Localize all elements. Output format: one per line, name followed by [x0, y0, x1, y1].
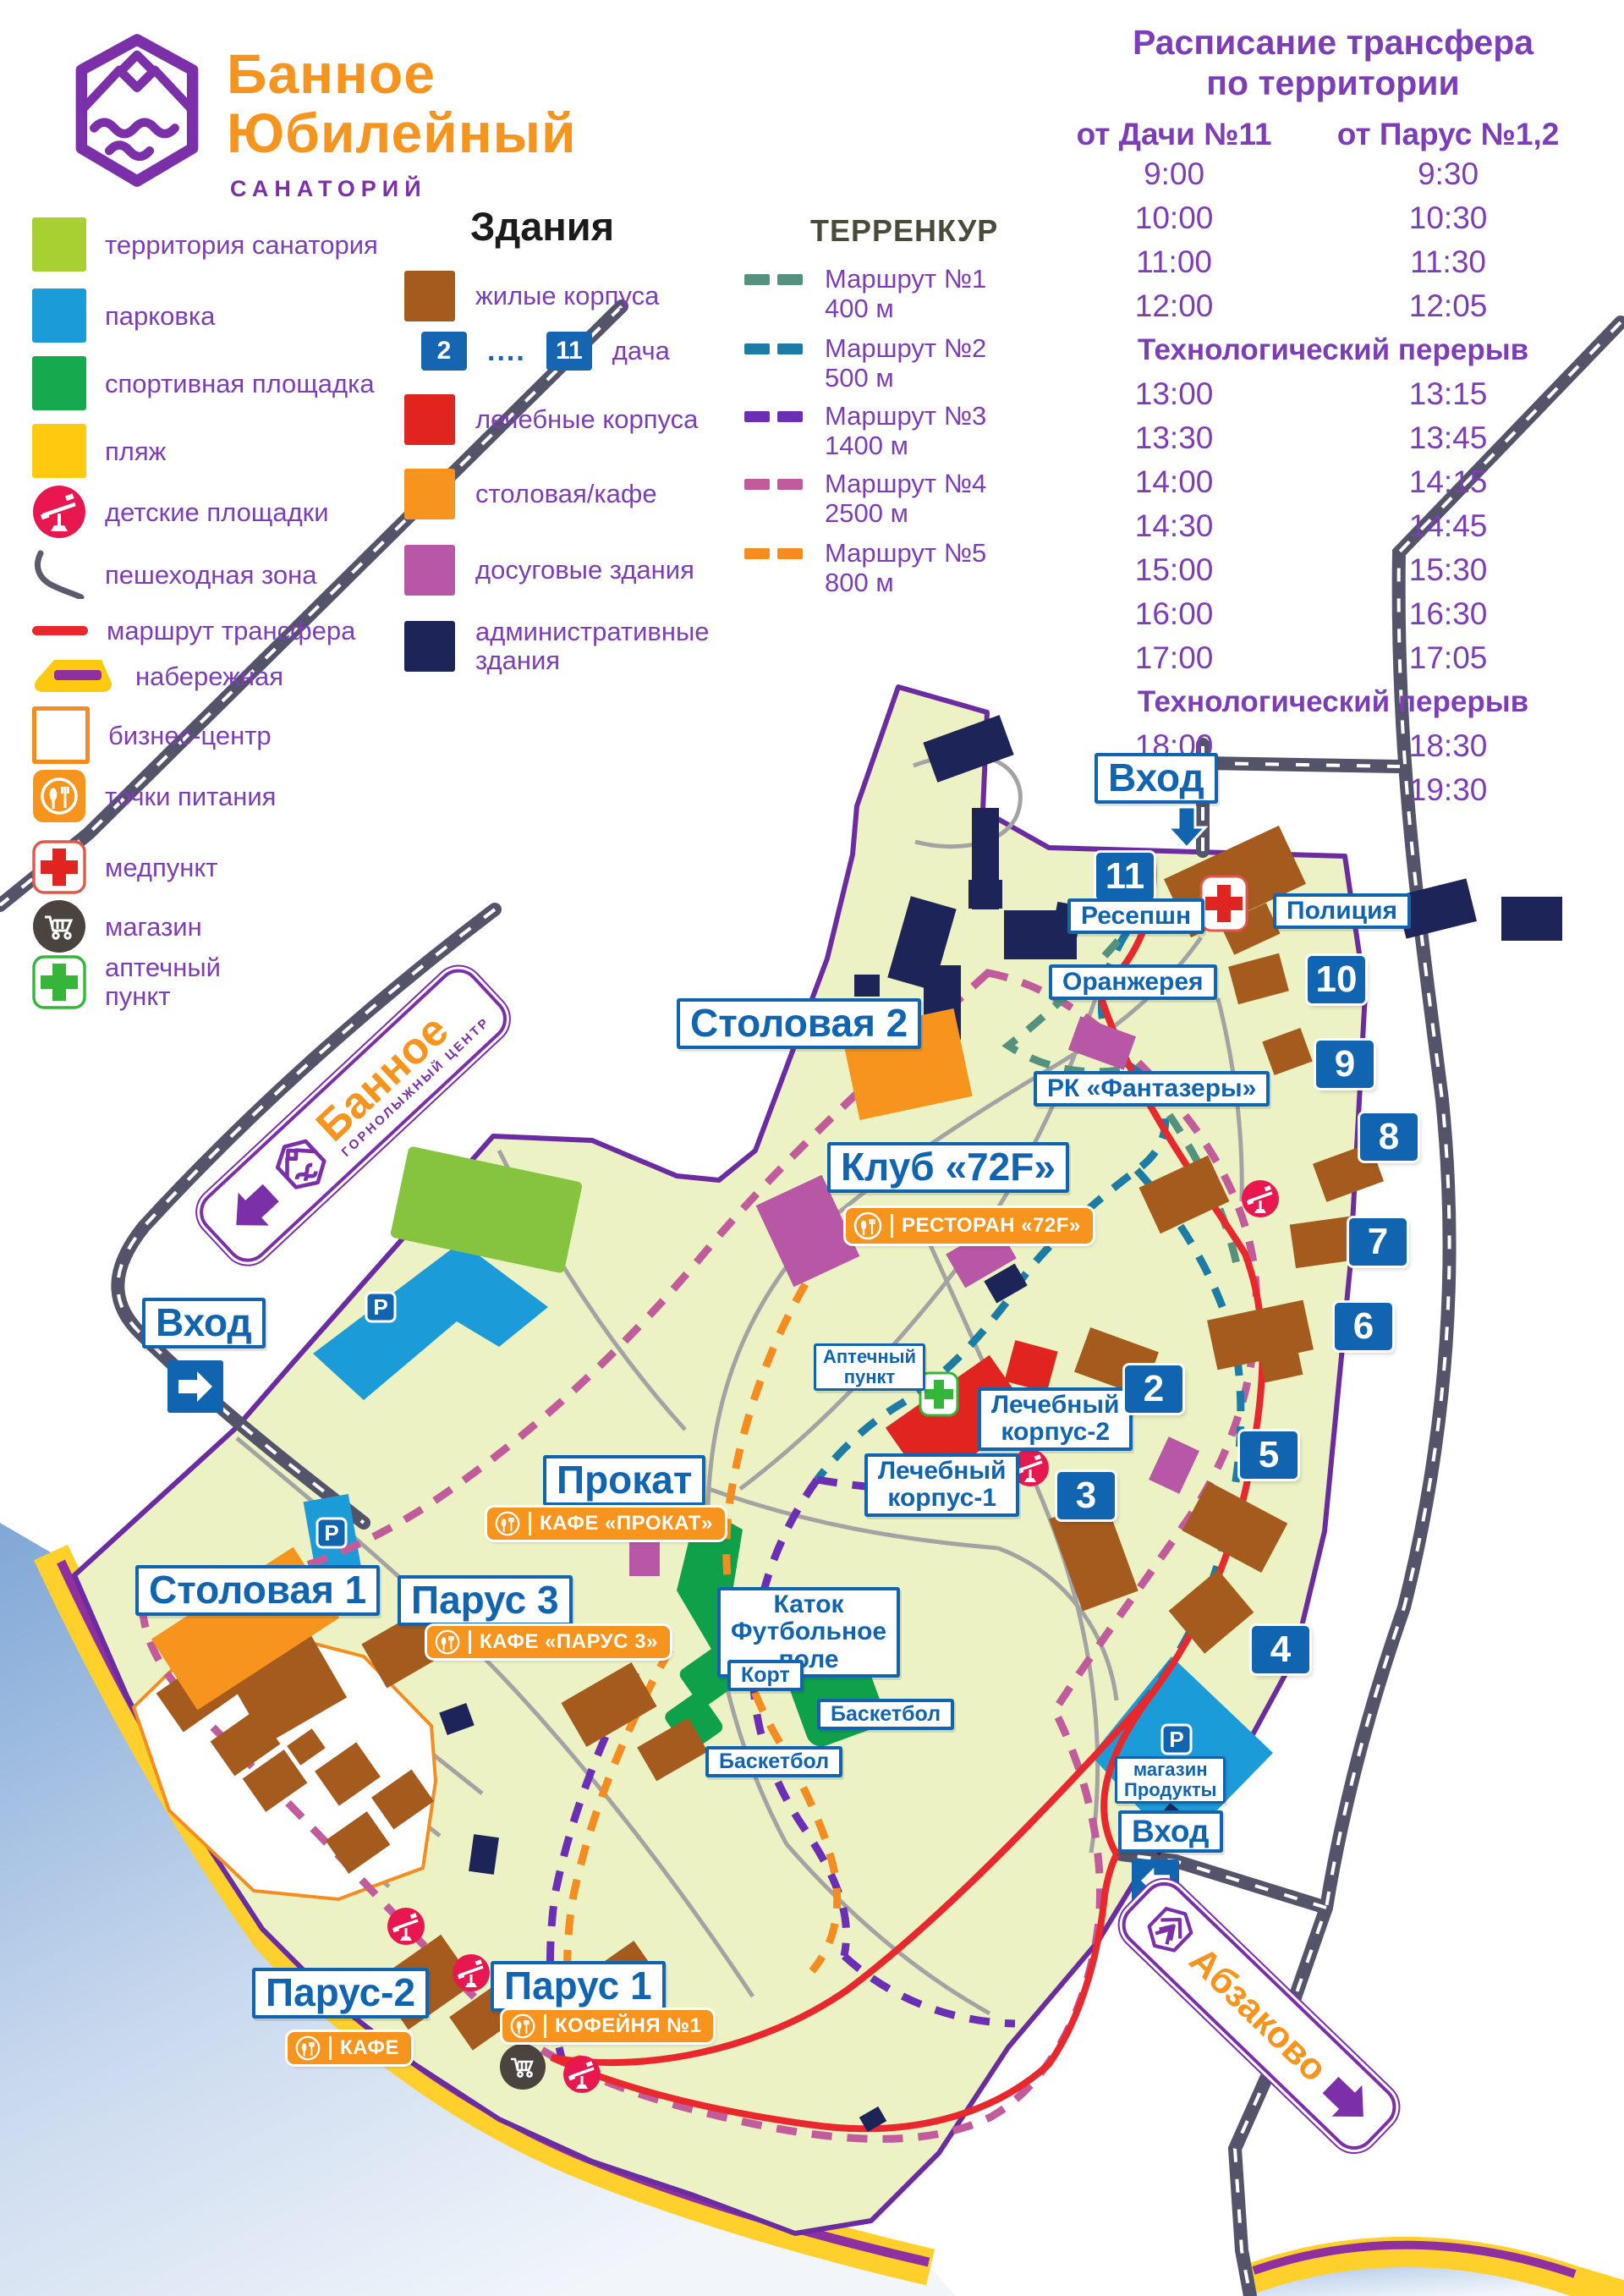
stolovaya1-label: Столовая 1 [135, 1565, 380, 1616]
legend-admin: административные здания [404, 618, 729, 675]
dining-swatch [404, 469, 455, 519]
dacha-8-plate: 8 [1360, 1113, 1418, 1161]
terrenkur-route-5: Маршрут №5800 м [744, 538, 986, 597]
prokat-label: Прокат [543, 1455, 705, 1506]
parus1-label: Парус 1 [491, 1961, 666, 2012]
resort-title-line1: Банное [227, 44, 577, 103]
dacha-2-plate: 2 [1125, 1365, 1182, 1413]
pharmacy-icon [920, 1373, 957, 1415]
food-point-icon [495, 1511, 520, 1536]
schedule-row: 12:0012:05 [1059, 284, 1607, 328]
dacha-9-plate: 9 [1316, 1041, 1374, 1088]
transfer-route-swatch [32, 626, 88, 635]
playground-icon [453, 1954, 490, 1991]
medpoint-icon [1201, 876, 1247, 931]
terrenkur-title: ТЕРРЕНКУР [810, 213, 998, 249]
legend-business-center: бизнес-центр [32, 707, 272, 763]
playground-icon [387, 1908, 425, 1945]
medical-swatch [404, 394, 455, 445]
dacha-dots: .... [487, 335, 526, 368]
arrow-right-icon [1313, 2067, 1381, 2135]
route2-swatch [744, 343, 803, 354]
police-label: Полиция [1273, 893, 1411, 929]
schedule-row: 9:009:30 [1059, 152, 1607, 196]
schedule-row: 13:0013:15 [1059, 372, 1607, 416]
legend-medpoint: медпункт [32, 839, 217, 895]
arrow-right-icon [167, 1360, 223, 1413]
cafe-parus3-badge: КАФЕ «ПАРУС 3» [427, 1626, 670, 1658]
route5-swatch [744, 548, 803, 559]
legend-sport: спортивная площадка [32, 355, 375, 411]
legend-dining: столовая/кафе [404, 469, 657, 519]
sport-swatch [32, 356, 86, 410]
pharmacy-label: Аптечныйпункт [814, 1343, 925, 1391]
terrenkur-route-2: Маршрут №2500 м [744, 333, 986, 393]
logo-icon [263, 1127, 338, 1202]
kort-label: Корт [727, 1660, 804, 1691]
dacha-4-plate: 4 [1252, 1626, 1309, 1673]
cafe-parus2-badge: КАФЕ [288, 2032, 411, 2064]
schedule-row: 13:3013:45 [1059, 416, 1607, 460]
entrance-bottom-sign: Вход [1118, 1810, 1223, 1853]
entrance-top-sign: Вход [1095, 753, 1218, 804]
arrow-left-icon [217, 1173, 289, 1244]
schedule-row: 10:0010:30 [1059, 196, 1607, 240]
admin-swatch [404, 621, 455, 672]
legend-food: точки питания [32, 768, 276, 824]
dacha-6-plate: 6 [1335, 1303, 1392, 1350]
dacha-plate-to: 11 [546, 332, 592, 371]
legend-beach: пляж [32, 423, 166, 479]
pharmacy-icon [32, 955, 86, 1009]
food-point-icon [435, 1629, 460, 1655]
embankment-swatch [32, 653, 117, 699]
dacha-3-plate: 3 [1057, 1472, 1115, 1519]
schedule-row: 17:0017:05 [1059, 636, 1607, 680]
legend-embankment: набережная [32, 648, 283, 704]
korpus1-label: Лечебныйкорпус-1 [864, 1453, 1019, 1517]
legend-medical-buildings: лечебные корпуса [404, 394, 698, 445]
pedestrian-zone-icon [32, 550, 86, 599]
svg-text:P: P [1169, 1727, 1183, 1752]
legend-dacha: 2 .... 11 дача [421, 332, 670, 371]
playground-icon [563, 2056, 601, 2093]
dacha-11-plate: 11 [1096, 853, 1154, 900]
terrenkur-route-3: Маршрут №31400 м [744, 401, 986, 460]
dacha-7-plate: 7 [1349, 1218, 1407, 1266]
food-point-icon [295, 2035, 321, 2061]
cafe-prokat-badge: КАФЕ «ПРОКАТ» [487, 1508, 725, 1540]
club72f-label: Клуб «72F» [827, 1142, 1069, 1193]
food-point-icon [32, 769, 86, 823]
restoran72f-badge: РЕСТОРАН «72F» [846, 1208, 1093, 1244]
legend-shop: магазин [32, 898, 202, 954]
transfer-schedule: Расписание трансфера по территории от Да… [1059, 22, 1607, 812]
schedule-break: Технологический перерыв [1059, 680, 1607, 724]
route3-swatch [744, 411, 803, 422]
logo-icon [61, 32, 213, 189]
shop-products-label: магазинПродукты [1115, 1756, 1226, 1804]
schedule-row: 15:0015:30 [1059, 548, 1607, 592]
legend-playgrounds: детские площадки [32, 484, 329, 540]
legend-pharmacy: аптечный пункт [32, 954, 232, 1010]
buildings-legend-title: Здания [470, 203, 614, 250]
dacha-plate-from: 2 [421, 332, 467, 371]
entrance-left-sign: Вход [142, 1298, 266, 1348]
parus2-label: Парус-2 [252, 1968, 429, 2019]
coffee1-badge: КОФЕЙНЯ №1 [502, 2010, 713, 2042]
orangery-label: Оранжерея [1049, 964, 1217, 1000]
residential-swatch [404, 271, 455, 321]
parking-swatch [32, 288, 86, 343]
food-point-icon [853, 1211, 882, 1240]
schedule-row: 14:3014:45 [1059, 504, 1607, 548]
arrow-down-icon [1166, 805, 1208, 849]
dacha-10-plate: 10 [1308, 956, 1365, 1003]
legend-parking: парковка [32, 288, 215, 343]
schedule-row: 11:0011:30 [1059, 240, 1607, 284]
terrenkur-route-1: Маршрут №1400 м [744, 264, 986, 323]
shop-cart-icon [32, 899, 86, 953]
playground-icon [1242, 1180, 1279, 1217]
food-point-icon [510, 2013, 535, 2039]
playground-icon [32, 485, 86, 539]
beach-swatch [32, 424, 86, 478]
legend-residential: жилые корпуса [404, 271, 659, 321]
dacha-5-plate: 5 [1240, 1431, 1298, 1479]
schedule-break: Технологический перерыв [1059, 328, 1607, 372]
resort-map-poster: P P P Банное Юбилейный САНАТОРИЙ террито… [0, 0, 1624, 2296]
basketball-label-2: Баскетбол [705, 1746, 842, 1777]
legend-leisure: досуговые здания [404, 545, 694, 596]
resort-title: Банное Юбилейный [227, 44, 577, 162]
korpus2-label: Лечебныйкорпус-2 [978, 1387, 1133, 1451]
schedule-row: 14:0014:15 [1059, 460, 1607, 504]
schedule-col-dacha: от Дачи №11 [1059, 117, 1289, 152]
schedule-col-parus: от Парус №1,2 [1289, 117, 1607, 152]
business-center-swatch [32, 706, 90, 764]
svg-text:P: P [373, 1294, 387, 1320]
fantasery-label: РК «Фантазеры» [1034, 1071, 1270, 1107]
resort-title-line2: Юбилейный [227, 103, 577, 162]
stolovaya2-label: Столовая 2 [677, 998, 921, 1049]
route1-swatch [744, 274, 803, 285]
terrenkur-route-4: Маршрут №42500 м [744, 469, 986, 528]
leisure-swatch [404, 545, 455, 596]
legend-pedestrian: пешеходная зона [32, 547, 316, 602]
reception-label: Ресепшн [1067, 898, 1204, 934]
route4-swatch [744, 479, 803, 490]
svg-text:P: P [324, 1520, 338, 1546]
medpoint-icon [32, 840, 86, 894]
schedule-header: от Дачи №11 от Парус №1,2 [1059, 117, 1607, 152]
territory-swatch [32, 217, 86, 272]
resort-subtitle: САНАТОРИЙ [230, 176, 427, 202]
logo-icon [1136, 1896, 1204, 1964]
schedule-title: Расписание трансфера по территории [1059, 22, 1607, 103]
legend-territory: территория санатория [32, 217, 378, 272]
shop-cart-icon [500, 2044, 546, 2090]
schedule-row: 16:0016:30 [1059, 592, 1607, 636]
basketball-label-1: Баскетбол [817, 1699, 954, 1730]
parus3-label: Парус 3 [398, 1575, 573, 1626]
